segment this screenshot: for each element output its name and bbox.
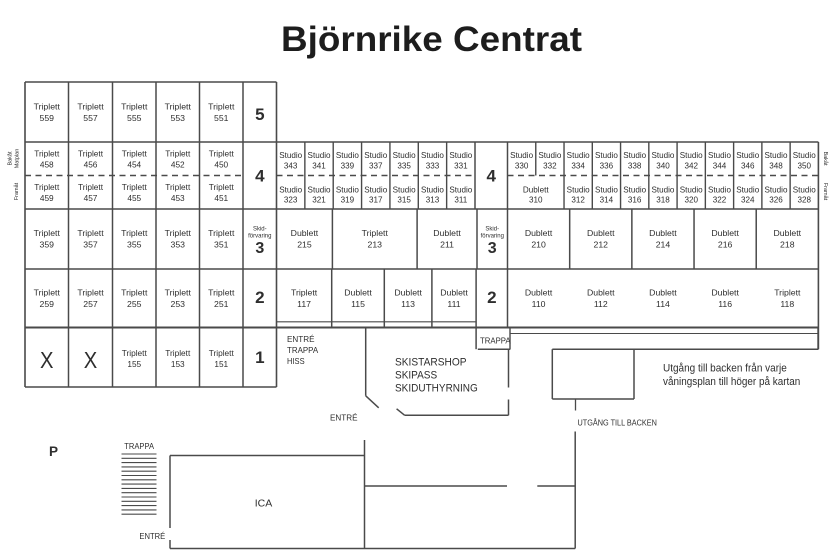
- svg-text:458: 458: [40, 160, 54, 170]
- svg-text:317: 317: [369, 196, 383, 205]
- svg-text:Framåt: Framåt: [822, 183, 829, 201]
- svg-text:324: 324: [741, 196, 755, 205]
- svg-text:323: 323: [284, 196, 298, 205]
- svg-text:Triplett: Triplett: [78, 182, 104, 192]
- svg-text:Studio: Studio: [364, 151, 387, 160]
- svg-text:Studio: Studio: [449, 186, 472, 195]
- svg-text:Skid-: Skid-: [485, 227, 499, 233]
- svg-text:Triplett: Triplett: [208, 228, 235, 238]
- svg-text:Triplett: Triplett: [209, 348, 235, 358]
- svg-text:111: 111: [447, 299, 460, 309]
- svg-text:Bakåt: Bakåt: [822, 151, 829, 166]
- svg-text:2: 2: [487, 288, 496, 307]
- svg-text:Framåt: Framåt: [13, 182, 20, 200]
- svg-text:459: 459: [40, 193, 54, 203]
- svg-text:Triplett: Triplett: [122, 348, 148, 358]
- svg-text:förvaring: förvaring: [481, 234, 504, 240]
- svg-text:318: 318: [656, 196, 670, 205]
- svg-text:321: 321: [312, 196, 326, 205]
- svg-text:Studio: Studio: [421, 151, 444, 160]
- svg-text:Studio: Studio: [793, 151, 816, 160]
- svg-text:216: 216: [718, 240, 733, 250]
- svg-text:153: 153: [171, 359, 185, 369]
- svg-text:212: 212: [594, 240, 609, 250]
- svg-text:TRAPPA: TRAPPA: [480, 336, 511, 346]
- svg-text:312: 312: [571, 196, 585, 205]
- svg-text:Studio: Studio: [336, 186, 359, 195]
- svg-text:253: 253: [171, 299, 186, 309]
- svg-text:våningsplan till höger på kart: våningsplan till höger på kartan: [663, 376, 800, 388]
- svg-text:337: 337: [369, 162, 383, 171]
- svg-text:TRAPPA: TRAPPA: [287, 345, 319, 355]
- svg-text:Studio: Studio: [510, 151, 533, 160]
- svg-text:332: 332: [543, 162, 557, 171]
- svg-text:116: 116: [718, 299, 732, 309]
- svg-text:346: 346: [741, 162, 755, 171]
- svg-text:Triplett: Triplett: [362, 228, 389, 238]
- svg-text:Studio: Studio: [393, 186, 416, 195]
- svg-text:322: 322: [713, 196, 727, 205]
- svg-text:213: 213: [368, 240, 383, 250]
- svg-text:Studio: Studio: [708, 186, 731, 195]
- svg-text:Triplett: Triplett: [34, 102, 61, 112]
- svg-text:453: 453: [171, 193, 185, 203]
- svg-text:Studio: Studio: [308, 151, 331, 160]
- svg-text:ENTRÉ: ENTRÉ: [287, 334, 315, 344]
- svg-text:342: 342: [684, 162, 698, 171]
- svg-text:ENTRÉ: ENTRÉ: [139, 532, 165, 541]
- svg-text:Studio: Studio: [680, 186, 703, 195]
- svg-text:Dublett: Dublett: [587, 228, 615, 238]
- svg-text:Studio: Studio: [793, 186, 816, 195]
- svg-text:Studio: Studio: [308, 186, 331, 195]
- svg-text:218: 218: [780, 240, 795, 250]
- svg-text:HISS: HISS: [287, 356, 305, 366]
- svg-text:Studio: Studio: [651, 186, 674, 195]
- svg-text:259: 259: [40, 299, 55, 309]
- svg-text:Studio: Studio: [708, 151, 731, 160]
- svg-text:334: 334: [571, 162, 585, 171]
- svg-text:Triplett: Triplett: [34, 182, 60, 192]
- svg-text:326: 326: [769, 196, 783, 205]
- svg-text:Studio: Studio: [567, 151, 590, 160]
- svg-text:1: 1: [255, 348, 264, 367]
- svg-text:Triplett: Triplett: [774, 288, 801, 298]
- svg-text:Dublett: Dublett: [344, 288, 372, 298]
- svg-text:Studio: Studio: [736, 186, 759, 195]
- svg-text:Triplett: Triplett: [121, 102, 148, 112]
- svg-text:Studio: Studio: [736, 151, 759, 160]
- svg-text:Dublett: Dublett: [291, 228, 319, 238]
- svg-text:457: 457: [84, 193, 98, 203]
- svg-text:2: 2: [255, 288, 264, 307]
- svg-text:Studio: Studio: [595, 151, 618, 160]
- svg-text:211: 211: [440, 240, 454, 250]
- svg-text:341: 341: [312, 162, 326, 171]
- svg-text:450: 450: [214, 160, 228, 170]
- svg-text:155: 155: [127, 359, 141, 369]
- svg-text:330: 330: [515, 162, 529, 171]
- svg-text:551: 551: [214, 113, 229, 123]
- svg-text:Studio: Studio: [623, 186, 646, 195]
- svg-text:455: 455: [127, 193, 141, 203]
- svg-text:Triplett: Triplett: [122, 149, 148, 159]
- svg-text:SKIDUTHYRNING: SKIDUTHYRNING: [395, 383, 478, 395]
- svg-text:Dublett: Dublett: [649, 228, 677, 238]
- svg-text:118: 118: [780, 299, 794, 309]
- svg-text:X: X: [84, 347, 98, 373]
- svg-text:X: X: [40, 347, 54, 373]
- svg-text:316: 316: [628, 196, 642, 205]
- svg-text:335: 335: [397, 162, 411, 171]
- svg-text:Dublett: Dublett: [649, 288, 677, 298]
- svg-text:3: 3: [488, 240, 497, 257]
- svg-text:Studio: Studio: [538, 151, 561, 160]
- svg-text:348: 348: [769, 162, 783, 171]
- svg-text:Studio: Studio: [279, 151, 302, 160]
- svg-text:215: 215: [297, 240, 312, 250]
- svg-text:TRAPPA: TRAPPA: [124, 442, 154, 451]
- svg-text:351: 351: [214, 240, 229, 250]
- svg-text:Dublett: Dublett: [523, 186, 549, 195]
- svg-text:UTGÅNG TILL BACKEN: UTGÅNG TILL BACKEN: [578, 418, 657, 428]
- svg-text:320: 320: [684, 196, 698, 205]
- svg-text:Triplett: Triplett: [165, 102, 192, 112]
- svg-text:Dublett: Dublett: [774, 228, 802, 238]
- svg-text:Studio: Studio: [449, 151, 472, 160]
- svg-text:4: 4: [487, 167, 497, 186]
- svg-text:340: 340: [656, 162, 670, 171]
- svg-text:Triplett: Triplett: [122, 182, 148, 192]
- svg-text:Dublett: Dublett: [525, 228, 553, 238]
- svg-text:Triplett: Triplett: [121, 288, 148, 298]
- svg-text:Dublett: Dublett: [711, 228, 739, 238]
- svg-text:ICA: ICA: [255, 498, 273, 510]
- svg-text:454: 454: [127, 160, 141, 170]
- svg-text:555: 555: [127, 113, 142, 123]
- svg-text:314: 314: [600, 196, 614, 205]
- svg-text:SKIPASS: SKIPASS: [395, 370, 437, 382]
- svg-text:Bakåt: Bakåt: [7, 151, 14, 166]
- svg-text:355: 355: [127, 240, 142, 250]
- svg-text:Studio: Studio: [651, 151, 674, 160]
- svg-text:ENTRÉ: ENTRÉ: [330, 413, 358, 423]
- svg-text:257: 257: [83, 299, 98, 309]
- svg-text:Studio: Studio: [765, 186, 788, 195]
- svg-text:Dublett: Dublett: [587, 288, 615, 298]
- svg-text:357: 357: [83, 240, 98, 250]
- svg-text:333: 333: [426, 162, 440, 171]
- svg-text:452: 452: [171, 160, 185, 170]
- svg-text:343: 343: [284, 162, 298, 171]
- svg-text:förvaring: förvaring: [248, 234, 271, 240]
- svg-text:353: 353: [171, 240, 186, 250]
- svg-text:557: 557: [83, 113, 98, 123]
- svg-text:Triplett: Triplett: [77, 228, 104, 238]
- svg-text:336: 336: [600, 162, 614, 171]
- svg-text:113: 113: [401, 299, 415, 309]
- svg-text:Triplett: Triplett: [34, 149, 60, 159]
- svg-text:251: 251: [214, 299, 229, 309]
- svg-text:451: 451: [214, 193, 228, 203]
- svg-text:4: 4: [255, 167, 265, 186]
- svg-text:115: 115: [351, 299, 365, 309]
- svg-text:Triplett: Triplett: [165, 182, 191, 192]
- svg-text:Björnrike Centrat: Björnrike Centrat: [281, 20, 582, 59]
- svg-text:Studio: Studio: [364, 186, 387, 195]
- svg-text:Studio: Studio: [279, 186, 302, 195]
- svg-text:Triplett: Triplett: [208, 102, 235, 112]
- svg-text:Matplan: Matplan: [15, 149, 21, 169]
- svg-text:Studio: Studio: [623, 151, 646, 160]
- svg-text:Triplett: Triplett: [34, 288, 61, 298]
- svg-text:Utgång till backen från varje: Utgång till backen från varje: [663, 363, 787, 375]
- svg-text:117: 117: [297, 299, 311, 309]
- svg-text:559: 559: [40, 113, 55, 123]
- svg-text:214: 214: [656, 240, 671, 250]
- svg-text:Triplett: Triplett: [208, 288, 235, 298]
- svg-text:Studio: Studio: [421, 186, 444, 195]
- svg-text:344: 344: [713, 162, 727, 171]
- svg-text:Triplett: Triplett: [121, 228, 148, 238]
- svg-text:Dublett: Dublett: [440, 288, 468, 298]
- svg-text:Triplett: Triplett: [165, 348, 191, 358]
- svg-text:315: 315: [397, 196, 411, 205]
- svg-text:319: 319: [341, 196, 355, 205]
- svg-text:Studio: Studio: [393, 151, 416, 160]
- svg-text:Studio: Studio: [336, 151, 359, 160]
- svg-text:313: 313: [426, 196, 440, 205]
- svg-text:Triplett: Triplett: [165, 288, 192, 298]
- svg-text:110: 110: [532, 299, 546, 309]
- svg-text:151: 151: [214, 359, 228, 369]
- svg-text:3: 3: [255, 240, 264, 257]
- svg-text:P: P: [49, 444, 58, 459]
- svg-text:Studio: Studio: [567, 186, 590, 195]
- svg-text:112: 112: [594, 299, 608, 309]
- svg-text:Triplett: Triplett: [165, 149, 191, 159]
- svg-text:Studio: Studio: [595, 186, 618, 195]
- svg-text:Triplett: Triplett: [209, 149, 235, 159]
- svg-text:553: 553: [171, 113, 186, 123]
- svg-text:328: 328: [798, 196, 812, 205]
- svg-text:Skid-: Skid-: [253, 227, 267, 233]
- svg-text:Triplett: Triplett: [165, 228, 192, 238]
- svg-text:Studio: Studio: [680, 151, 703, 160]
- svg-text:255: 255: [127, 299, 142, 309]
- svg-text:310: 310: [529, 196, 543, 205]
- svg-text:331: 331: [454, 162, 468, 171]
- svg-text:339: 339: [341, 162, 355, 171]
- svg-text:Triplett: Triplett: [78, 149, 104, 159]
- svg-text:Dublett: Dublett: [433, 228, 461, 238]
- svg-text:456: 456: [84, 160, 98, 170]
- svg-text:5: 5: [255, 105, 264, 124]
- svg-text:SKISTARSHOP: SKISTARSHOP: [395, 357, 467, 369]
- svg-text:Triplett: Triplett: [209, 182, 235, 192]
- svg-text:359: 359: [40, 240, 55, 250]
- svg-text:114: 114: [656, 299, 670, 309]
- svg-text:210: 210: [531, 240, 546, 250]
- svg-text:Studio: Studio: [765, 151, 788, 160]
- svg-text:Triplett: Triplett: [77, 102, 104, 112]
- svg-text:350: 350: [798, 162, 812, 171]
- svg-text:338: 338: [628, 162, 642, 171]
- svg-text:Dublett: Dublett: [394, 288, 422, 298]
- svg-text:Triplett: Triplett: [291, 288, 318, 298]
- svg-text:Triplett: Triplett: [34, 228, 61, 238]
- svg-text:Triplett: Triplett: [77, 288, 104, 298]
- svg-text:Dublett: Dublett: [711, 288, 739, 298]
- svg-text:Dublett: Dublett: [525, 288, 553, 298]
- svg-text:311: 311: [454, 196, 467, 205]
